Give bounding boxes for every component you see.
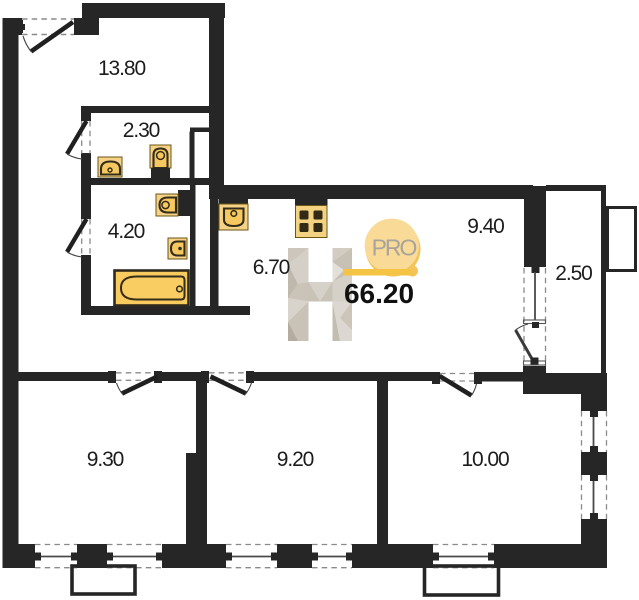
svg-text:9.40: 9.40	[467, 215, 504, 238]
svg-text:PRO: PRO	[372, 235, 417, 261]
svg-text:9.20: 9.20	[277, 448, 314, 471]
svg-text:6.70: 6.70	[253, 256, 290, 279]
svg-text:10.00: 10.00	[461, 448, 508, 471]
svg-text:2.30: 2.30	[123, 119, 160, 142]
svg-text:2.50: 2.50	[555, 262, 592, 285]
svg-text:9.30: 9.30	[87, 448, 124, 471]
svg-text:13.80: 13.80	[98, 57, 145, 80]
svg-text:66.20: 66.20	[344, 278, 414, 309]
svg-text:4.20: 4.20	[108, 220, 145, 243]
